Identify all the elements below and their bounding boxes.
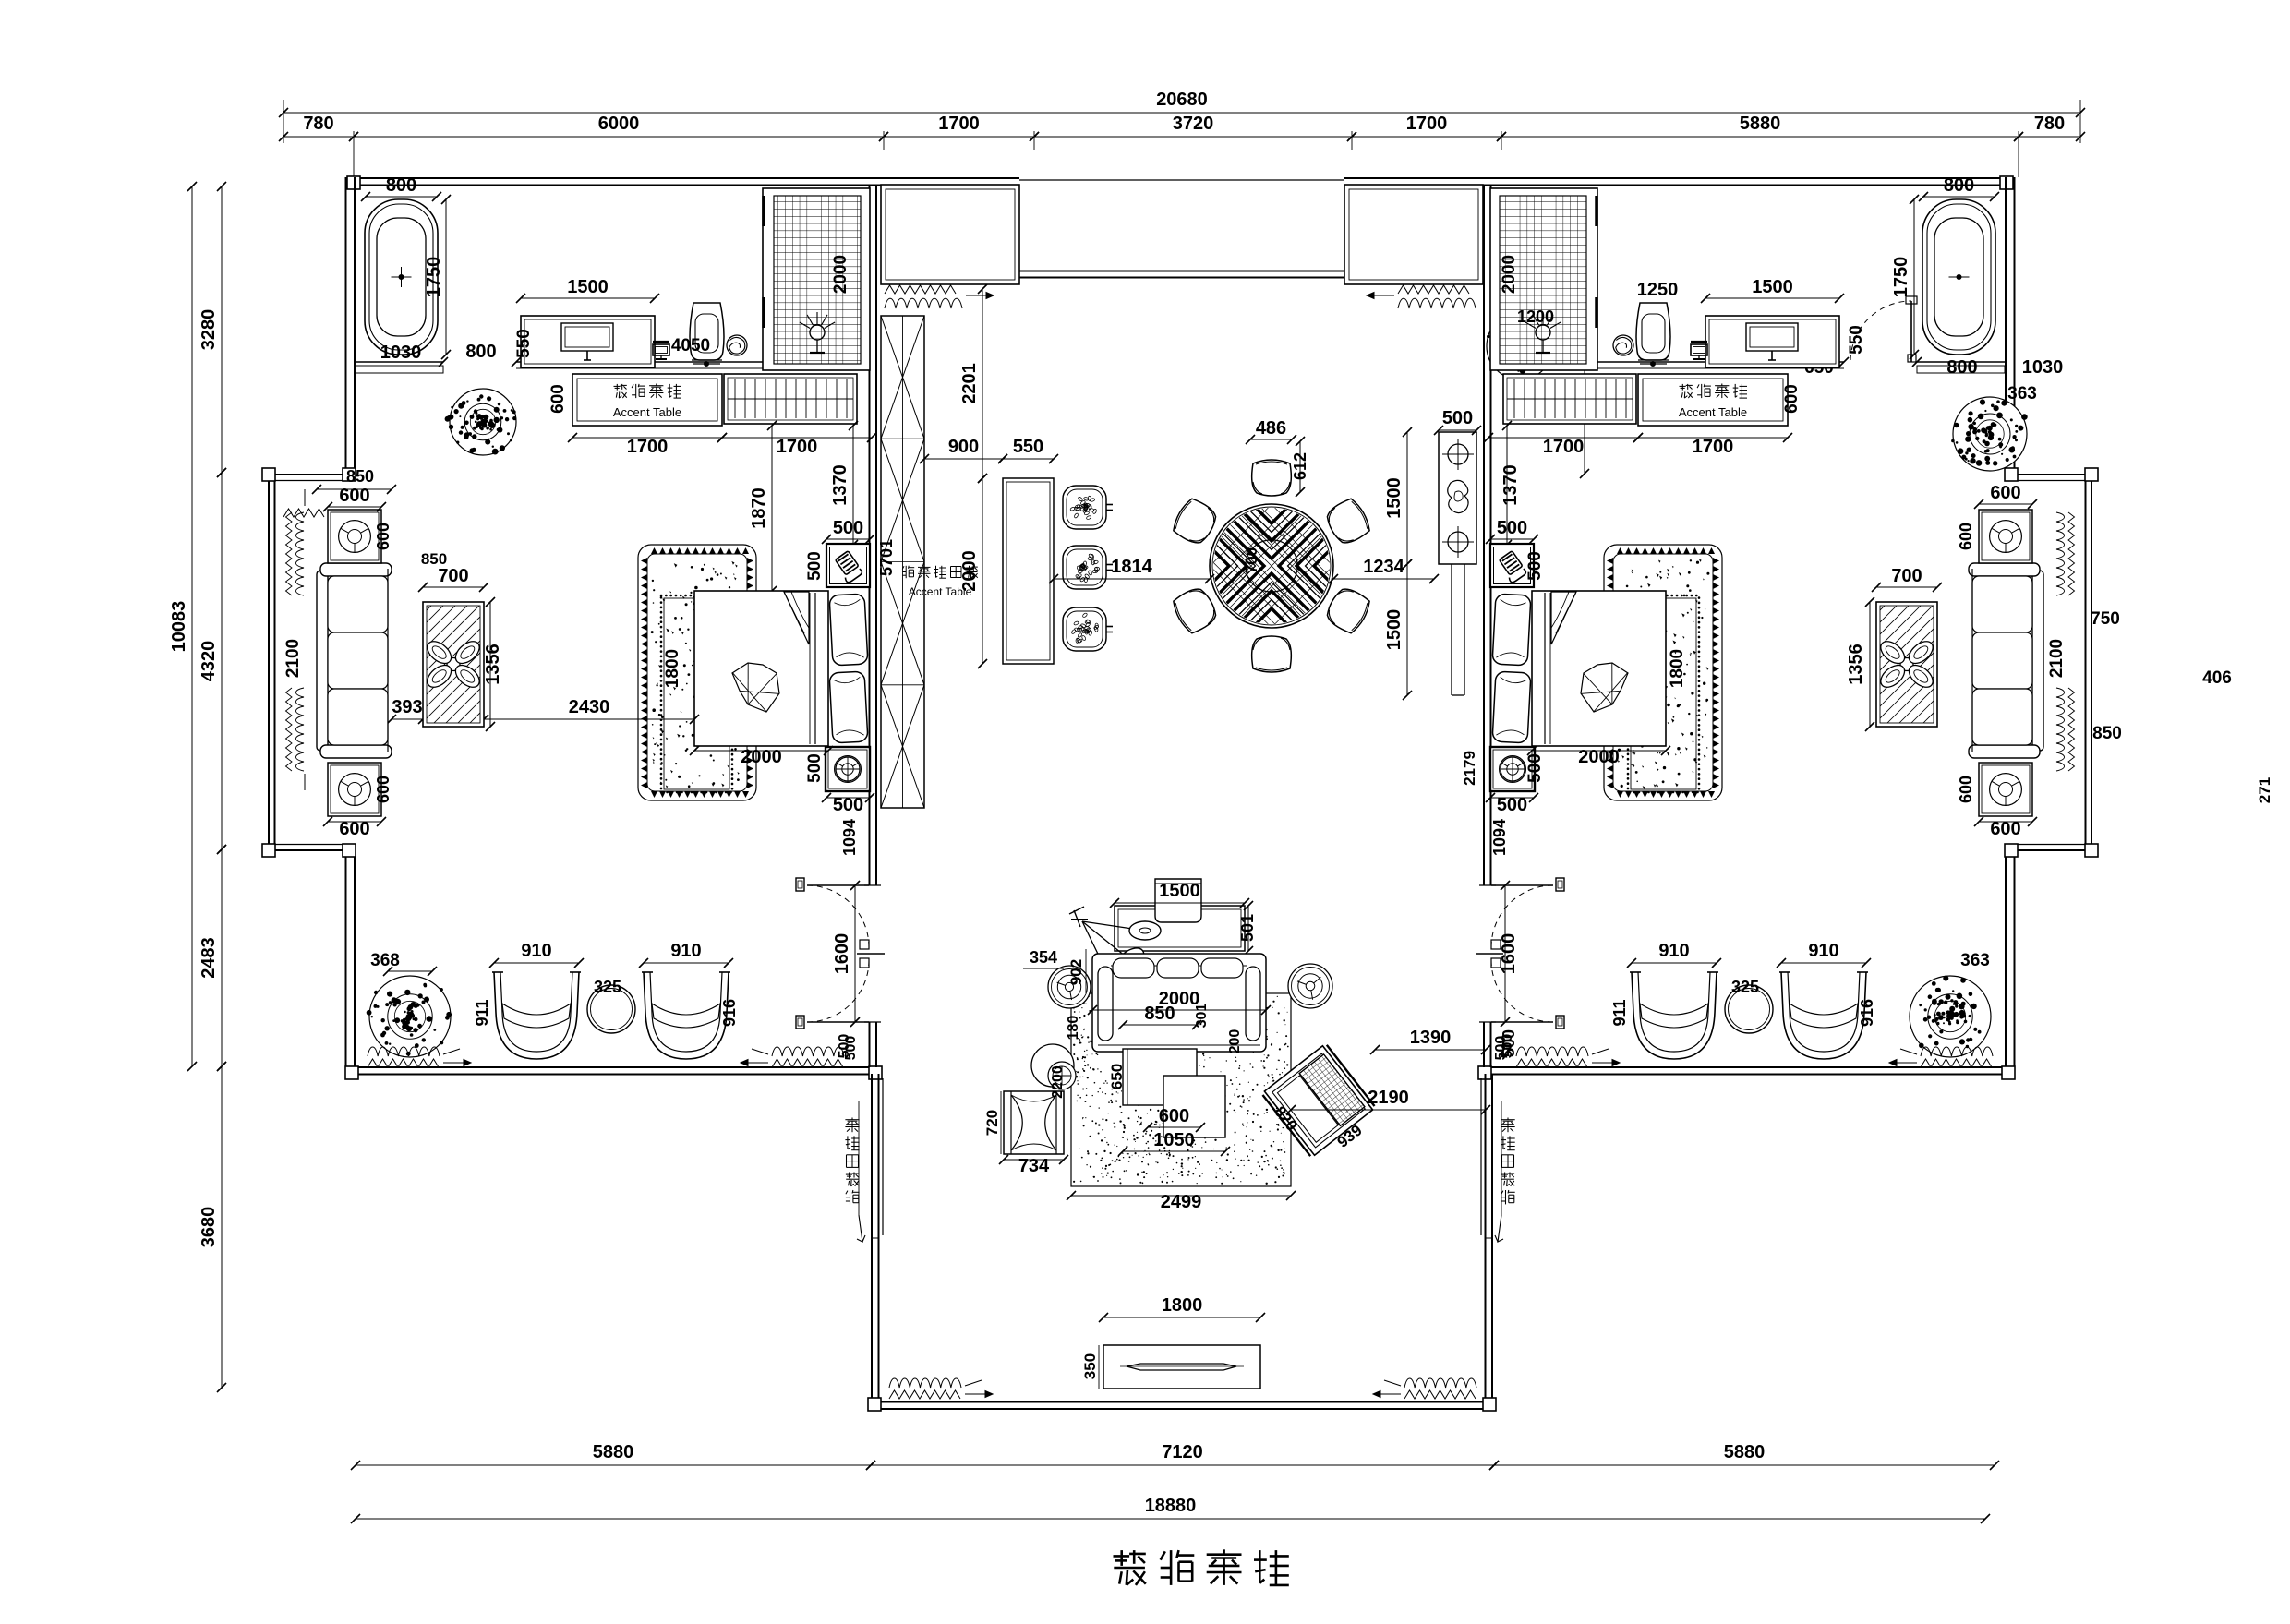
svg-text:850: 850: [346, 467, 374, 486]
svg-text:Accent Table: Accent Table: [1679, 405, 1747, 419]
svg-text:600: 600: [1957, 776, 1975, 803]
svg-text:500: 500: [805, 753, 825, 783]
svg-text:600: 600: [1957, 523, 1975, 550]
svg-text:1700: 1700: [627, 437, 669, 457]
svg-text:1500: 1500: [1159, 881, 1200, 901]
svg-text:911: 911: [1610, 999, 1629, 1026]
svg-text:2100: 2100: [2047, 639, 2067, 678]
svg-text:325: 325: [1731, 978, 1759, 996]
svg-text:720: 720: [983, 1110, 1001, 1136]
svg-text:600: 600: [1159, 1106, 1189, 1126]
svg-text:271: 271: [2256, 777, 2273, 803]
svg-text:3720: 3720: [1173, 114, 1214, 134]
svg-text:354: 354: [1030, 948, 1057, 967]
svg-text:700: 700: [1891, 566, 1922, 586]
svg-text:1700: 1700: [1693, 437, 1734, 457]
svg-text:501: 501: [1238, 914, 1257, 942]
svg-text:350: 350: [1081, 1353, 1099, 1379]
svg-text:2499: 2499: [1161, 1192, 1202, 1212]
svg-text:1370: 1370: [1501, 464, 1521, 506]
svg-text:911: 911: [473, 999, 491, 1026]
svg-text:1094: 1094: [1490, 819, 1509, 856]
svg-text:2430: 2430: [569, 697, 610, 717]
svg-text:800: 800: [465, 342, 496, 362]
svg-text:5880: 5880: [1740, 114, 1781, 134]
svg-text:20680: 20680: [1156, 90, 1208, 110]
svg-text:500: 500: [1497, 518, 1527, 538]
svg-text:1600: 1600: [1499, 933, 1519, 975]
svg-text:600: 600: [339, 819, 369, 839]
svg-text:2179: 2179: [1461, 751, 1478, 786]
svg-text:500: 500: [1525, 753, 1545, 783]
svg-text:850: 850: [2092, 724, 2122, 743]
svg-text:2190: 2190: [1368, 1088, 1409, 1108]
svg-text:1814: 1814: [1111, 557, 1152, 577]
svg-text:368: 368: [370, 951, 400, 970]
svg-text:500: 500: [1525, 551, 1545, 581]
svg-text:18880: 18880: [1145, 1496, 1197, 1516]
svg-text:600: 600: [1782, 384, 1802, 414]
svg-text:5880: 5880: [593, 1442, 634, 1462]
svg-text:1500: 1500: [1752, 277, 1793, 297]
svg-text:500: 500: [1493, 1036, 1509, 1061]
svg-text:301: 301: [1194, 1004, 1210, 1029]
svg-text:1750: 1750: [1891, 257, 1911, 298]
svg-text:4050: 4050: [671, 336, 710, 355]
svg-text:550: 550: [514, 329, 534, 358]
svg-text:850: 850: [421, 550, 447, 568]
svg-text:734: 734: [1018, 1156, 1050, 1176]
svg-text:2200: 2200: [1050, 1065, 1066, 1099]
svg-text:902: 902: [1067, 959, 1085, 985]
svg-text:1370: 1370: [830, 464, 850, 506]
svg-text:4320: 4320: [199, 641, 219, 682]
svg-text:1500: 1500: [1384, 609, 1404, 651]
svg-text:600: 600: [1990, 819, 2020, 839]
svg-text:363: 363: [2007, 384, 2037, 403]
svg-text:600: 600: [339, 486, 369, 506]
svg-text:2483: 2483: [199, 937, 219, 979]
svg-text:500: 500: [805, 551, 825, 581]
svg-text:700: 700: [1243, 547, 1260, 573]
svg-text:7120: 7120: [1162, 1442, 1203, 1462]
svg-text:3680: 3680: [199, 1207, 219, 1248]
svg-text:1870: 1870: [749, 487, 769, 529]
svg-text:800: 800: [1946, 357, 1977, 378]
svg-text:1030: 1030: [2022, 357, 2064, 378]
svg-text:910: 910: [670, 941, 701, 961]
svg-text:1234: 1234: [1363, 557, 1404, 577]
svg-text:1030: 1030: [380, 343, 422, 363]
svg-text:406: 406: [2202, 668, 2232, 688]
svg-text:550: 550: [1013, 437, 1043, 457]
svg-text:550: 550: [1847, 325, 1866, 355]
svg-text:750: 750: [2091, 609, 2120, 629]
svg-text:1700: 1700: [1543, 437, 1585, 457]
svg-text:500: 500: [1497, 795, 1527, 815]
svg-text:1750: 1750: [424, 257, 444, 298]
svg-text:1356: 1356: [1846, 644, 1866, 685]
svg-text:1390: 1390: [1410, 1028, 1452, 1048]
svg-text:600: 600: [1990, 483, 2020, 503]
svg-text:900: 900: [948, 437, 979, 457]
svg-text:700: 700: [438, 566, 468, 586]
svg-text:600: 600: [374, 776, 392, 803]
svg-text:500: 500: [833, 518, 863, 538]
svg-text:325: 325: [594, 978, 621, 996]
svg-text:5701: 5701: [877, 539, 896, 576]
svg-text:1250: 1250: [1637, 280, 1679, 300]
svg-text:180: 180: [1066, 1016, 1081, 1041]
svg-text:Accent Table: Accent Table: [613, 405, 681, 419]
svg-text:910: 910: [1808, 941, 1838, 961]
svg-text:600: 600: [374, 523, 392, 550]
svg-text:800: 800: [1944, 175, 1974, 196]
svg-text:800: 800: [386, 175, 416, 196]
svg-text:910: 910: [521, 941, 551, 961]
svg-text:5880: 5880: [1724, 1442, 1766, 1462]
svg-text:1500: 1500: [567, 277, 609, 297]
svg-text:1700: 1700: [1406, 114, 1448, 134]
svg-text:1800: 1800: [1162, 1295, 1203, 1316]
svg-text:2000: 2000: [1578, 747, 1620, 767]
svg-text:780: 780: [2034, 114, 2065, 134]
svg-text:916: 916: [720, 999, 739, 1027]
svg-text:1200: 1200: [1517, 307, 1554, 326]
svg-text:1356: 1356: [483, 644, 503, 685]
svg-text:2100: 2100: [283, 639, 303, 678]
svg-text:200: 200: [1227, 1029, 1243, 1054]
svg-text:2000: 2000: [831, 255, 850, 294]
svg-text:2000: 2000: [959, 550, 980, 592]
svg-text:600: 600: [548, 384, 568, 414]
svg-text:1700: 1700: [777, 437, 818, 457]
svg-text:2000: 2000: [741, 747, 782, 767]
svg-text:1800: 1800: [663, 649, 682, 688]
svg-text:1500: 1500: [1384, 477, 1404, 519]
svg-text:910: 910: [1658, 941, 1689, 961]
svg-text:6000: 6000: [598, 114, 640, 134]
svg-text:363: 363: [1960, 951, 1990, 970]
svg-text:650: 650: [1108, 1064, 1126, 1089]
svg-text:2000: 2000: [1500, 255, 1519, 294]
svg-text:1094: 1094: [840, 819, 859, 856]
svg-text:780: 780: [303, 114, 333, 134]
svg-text:500: 500: [1442, 408, 1473, 428]
svg-text:486: 486: [1256, 418, 1286, 439]
svg-text:1800: 1800: [1668, 649, 1687, 688]
svg-text:500: 500: [833, 795, 863, 815]
svg-text:916: 916: [1858, 999, 1876, 1027]
svg-text:500: 500: [843, 1036, 859, 1061]
svg-text:393: 393: [392, 697, 422, 717]
svg-text:1050: 1050: [1153, 1130, 1195, 1150]
svg-text:1700: 1700: [938, 114, 980, 134]
svg-text:10083: 10083: [169, 601, 189, 653]
svg-text:3280: 3280: [199, 309, 219, 351]
svg-text:2201: 2201: [959, 363, 980, 404]
svg-text:1600: 1600: [832, 933, 852, 975]
svg-text:850: 850: [1144, 1004, 1175, 1024]
